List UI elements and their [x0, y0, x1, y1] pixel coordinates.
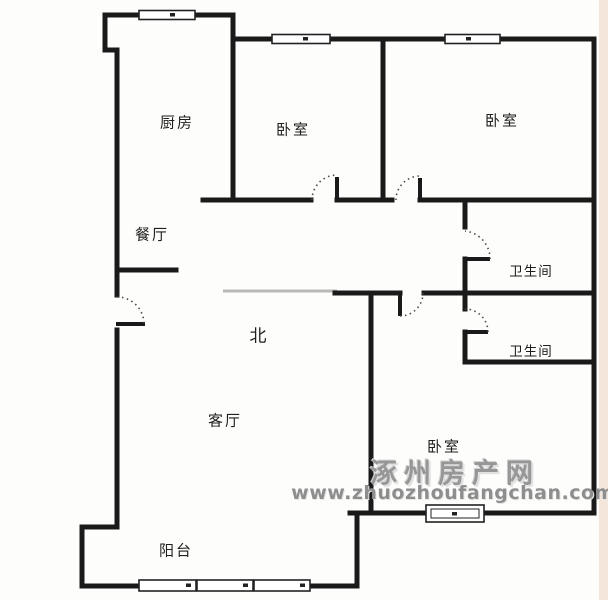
room-label-bathroom-lower: 卫生间 [509, 340, 553, 360]
room-label-bedroom-top-middle: 卧室 [276, 119, 310, 140]
door-arc [465, 309, 488, 332]
room-label-bathroom-upper: 卫生间 [509, 260, 553, 280]
door-arc [400, 293, 423, 316]
window [272, 35, 330, 44]
door-arc [465, 231, 490, 259]
room-label-kitchen: 厨房 [160, 112, 194, 133]
door-arc [396, 176, 420, 200]
door-arc [312, 175, 337, 200]
room-label-living: 客厅 [208, 410, 242, 431]
watermark-site-url: www.zhuozhoufangchan.com [291, 482, 608, 504]
room-label-balcony: 阳台 [159, 540, 193, 561]
scan-edge-strip [599, 0, 608, 600]
room-label-bedroom-bottom: 卧室 [427, 436, 461, 457]
door-arc [117, 297, 144, 324]
window [445, 35, 500, 44]
north-label: 北 [250, 322, 267, 347]
floor-plan: 厨房 卧室 卧室 餐厅 卫生间 卫生间 北 客厅 卧室 阳台 涿州房产网 www… [0, 0, 608, 600]
window [139, 11, 195, 20]
room-label-bedroom-top-right: 卧室 [485, 110, 519, 131]
room-label-dining: 餐厅 [135, 224, 169, 245]
floor-plan-drawing [0, 0, 608, 600]
